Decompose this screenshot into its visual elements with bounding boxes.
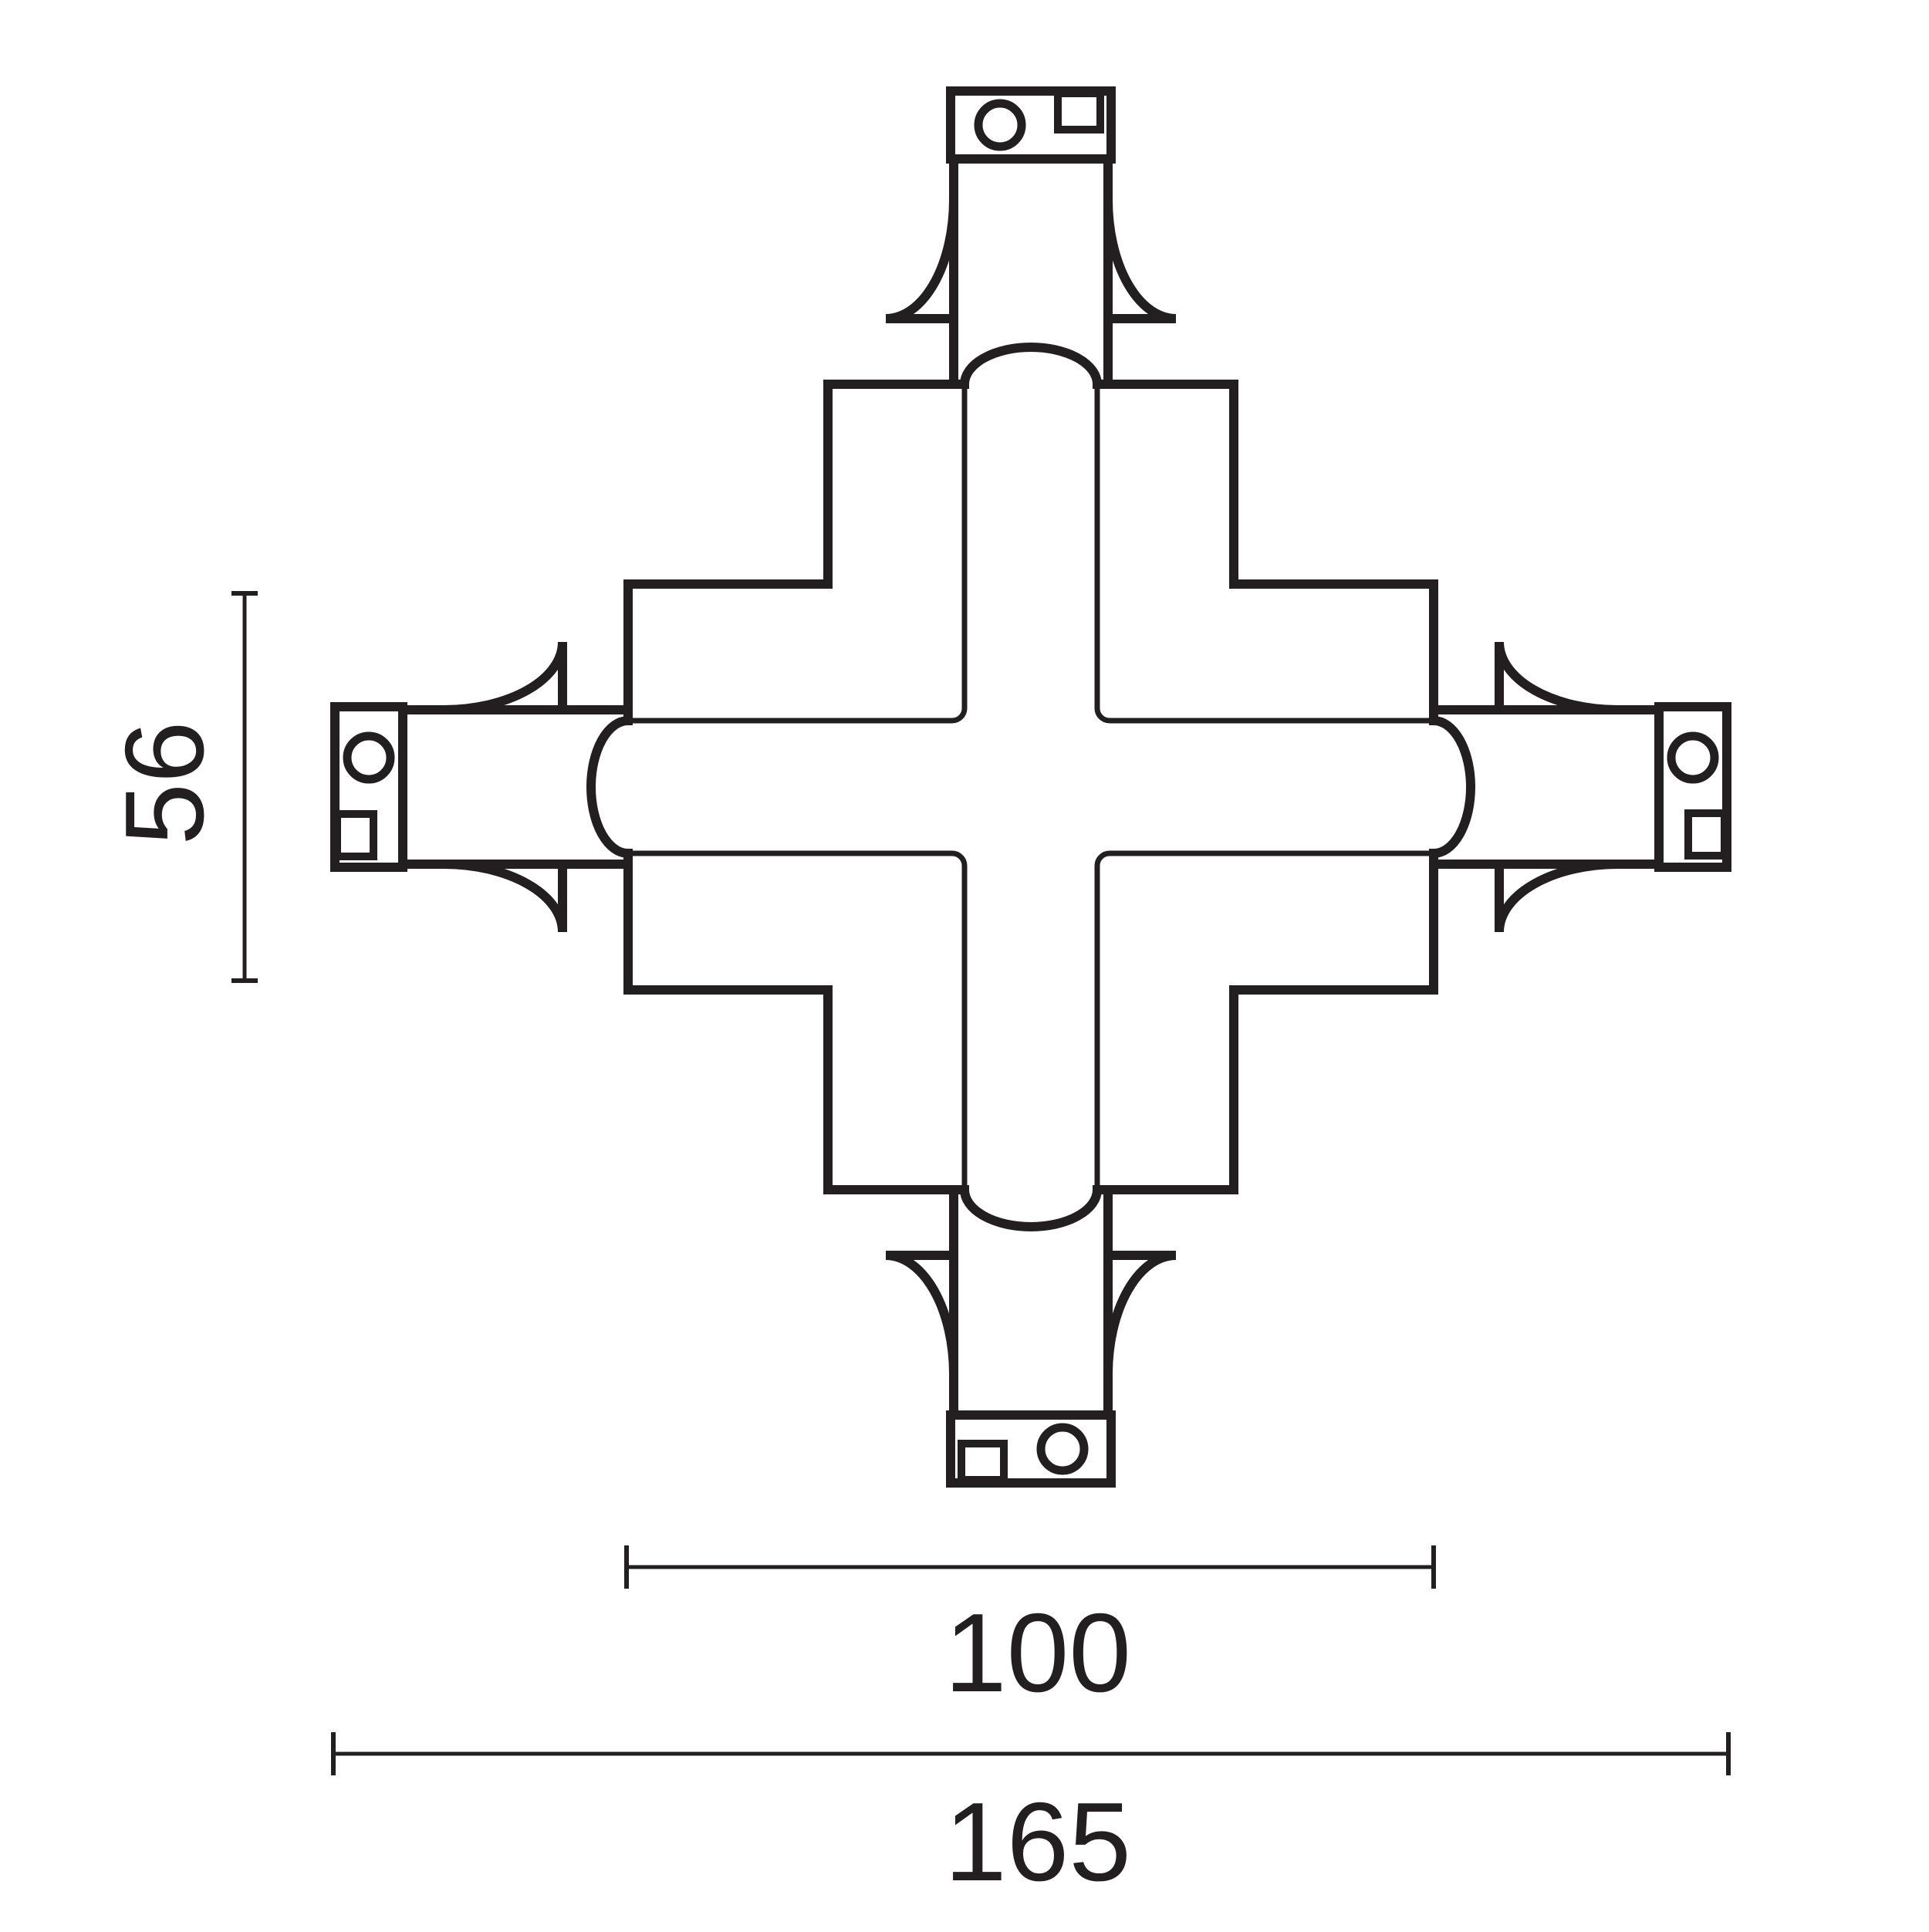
dimension-label-56: 56 bbox=[102, 721, 227, 845]
tab-right-upper bbox=[1499, 642, 1618, 710]
connector-plan-drawing: 56 100 165 bbox=[0, 0, 1929, 1932]
tab-top-left bbox=[886, 200, 954, 319]
tab-left-lower bbox=[444, 864, 562, 932]
dimension-label-165: 165 bbox=[944, 1779, 1131, 1904]
tab-right-lower bbox=[1499, 864, 1618, 932]
tab-bottom-right bbox=[1108, 1255, 1176, 1374]
end-cap-right bbox=[1659, 707, 1727, 867]
dimension-165: 165 bbox=[333, 1732, 1728, 1904]
cap-body bbox=[335, 707, 403, 867]
technical-drawing-page: 56 100 165 bbox=[0, 0, 1929, 1932]
dimension-56: 56 bbox=[102, 593, 258, 981]
tab-left-upper bbox=[444, 642, 562, 710]
end-cap-bottom bbox=[951, 1415, 1111, 1483]
end-cap-top bbox=[951, 91, 1111, 159]
end-cap-left bbox=[335, 707, 403, 867]
dimension-label-100: 100 bbox=[944, 1590, 1131, 1715]
tab-top-right bbox=[1108, 200, 1176, 319]
dimension-100: 100 bbox=[627, 1545, 1434, 1715]
cap-body bbox=[1659, 707, 1727, 867]
tab-bottom-left bbox=[886, 1255, 954, 1374]
